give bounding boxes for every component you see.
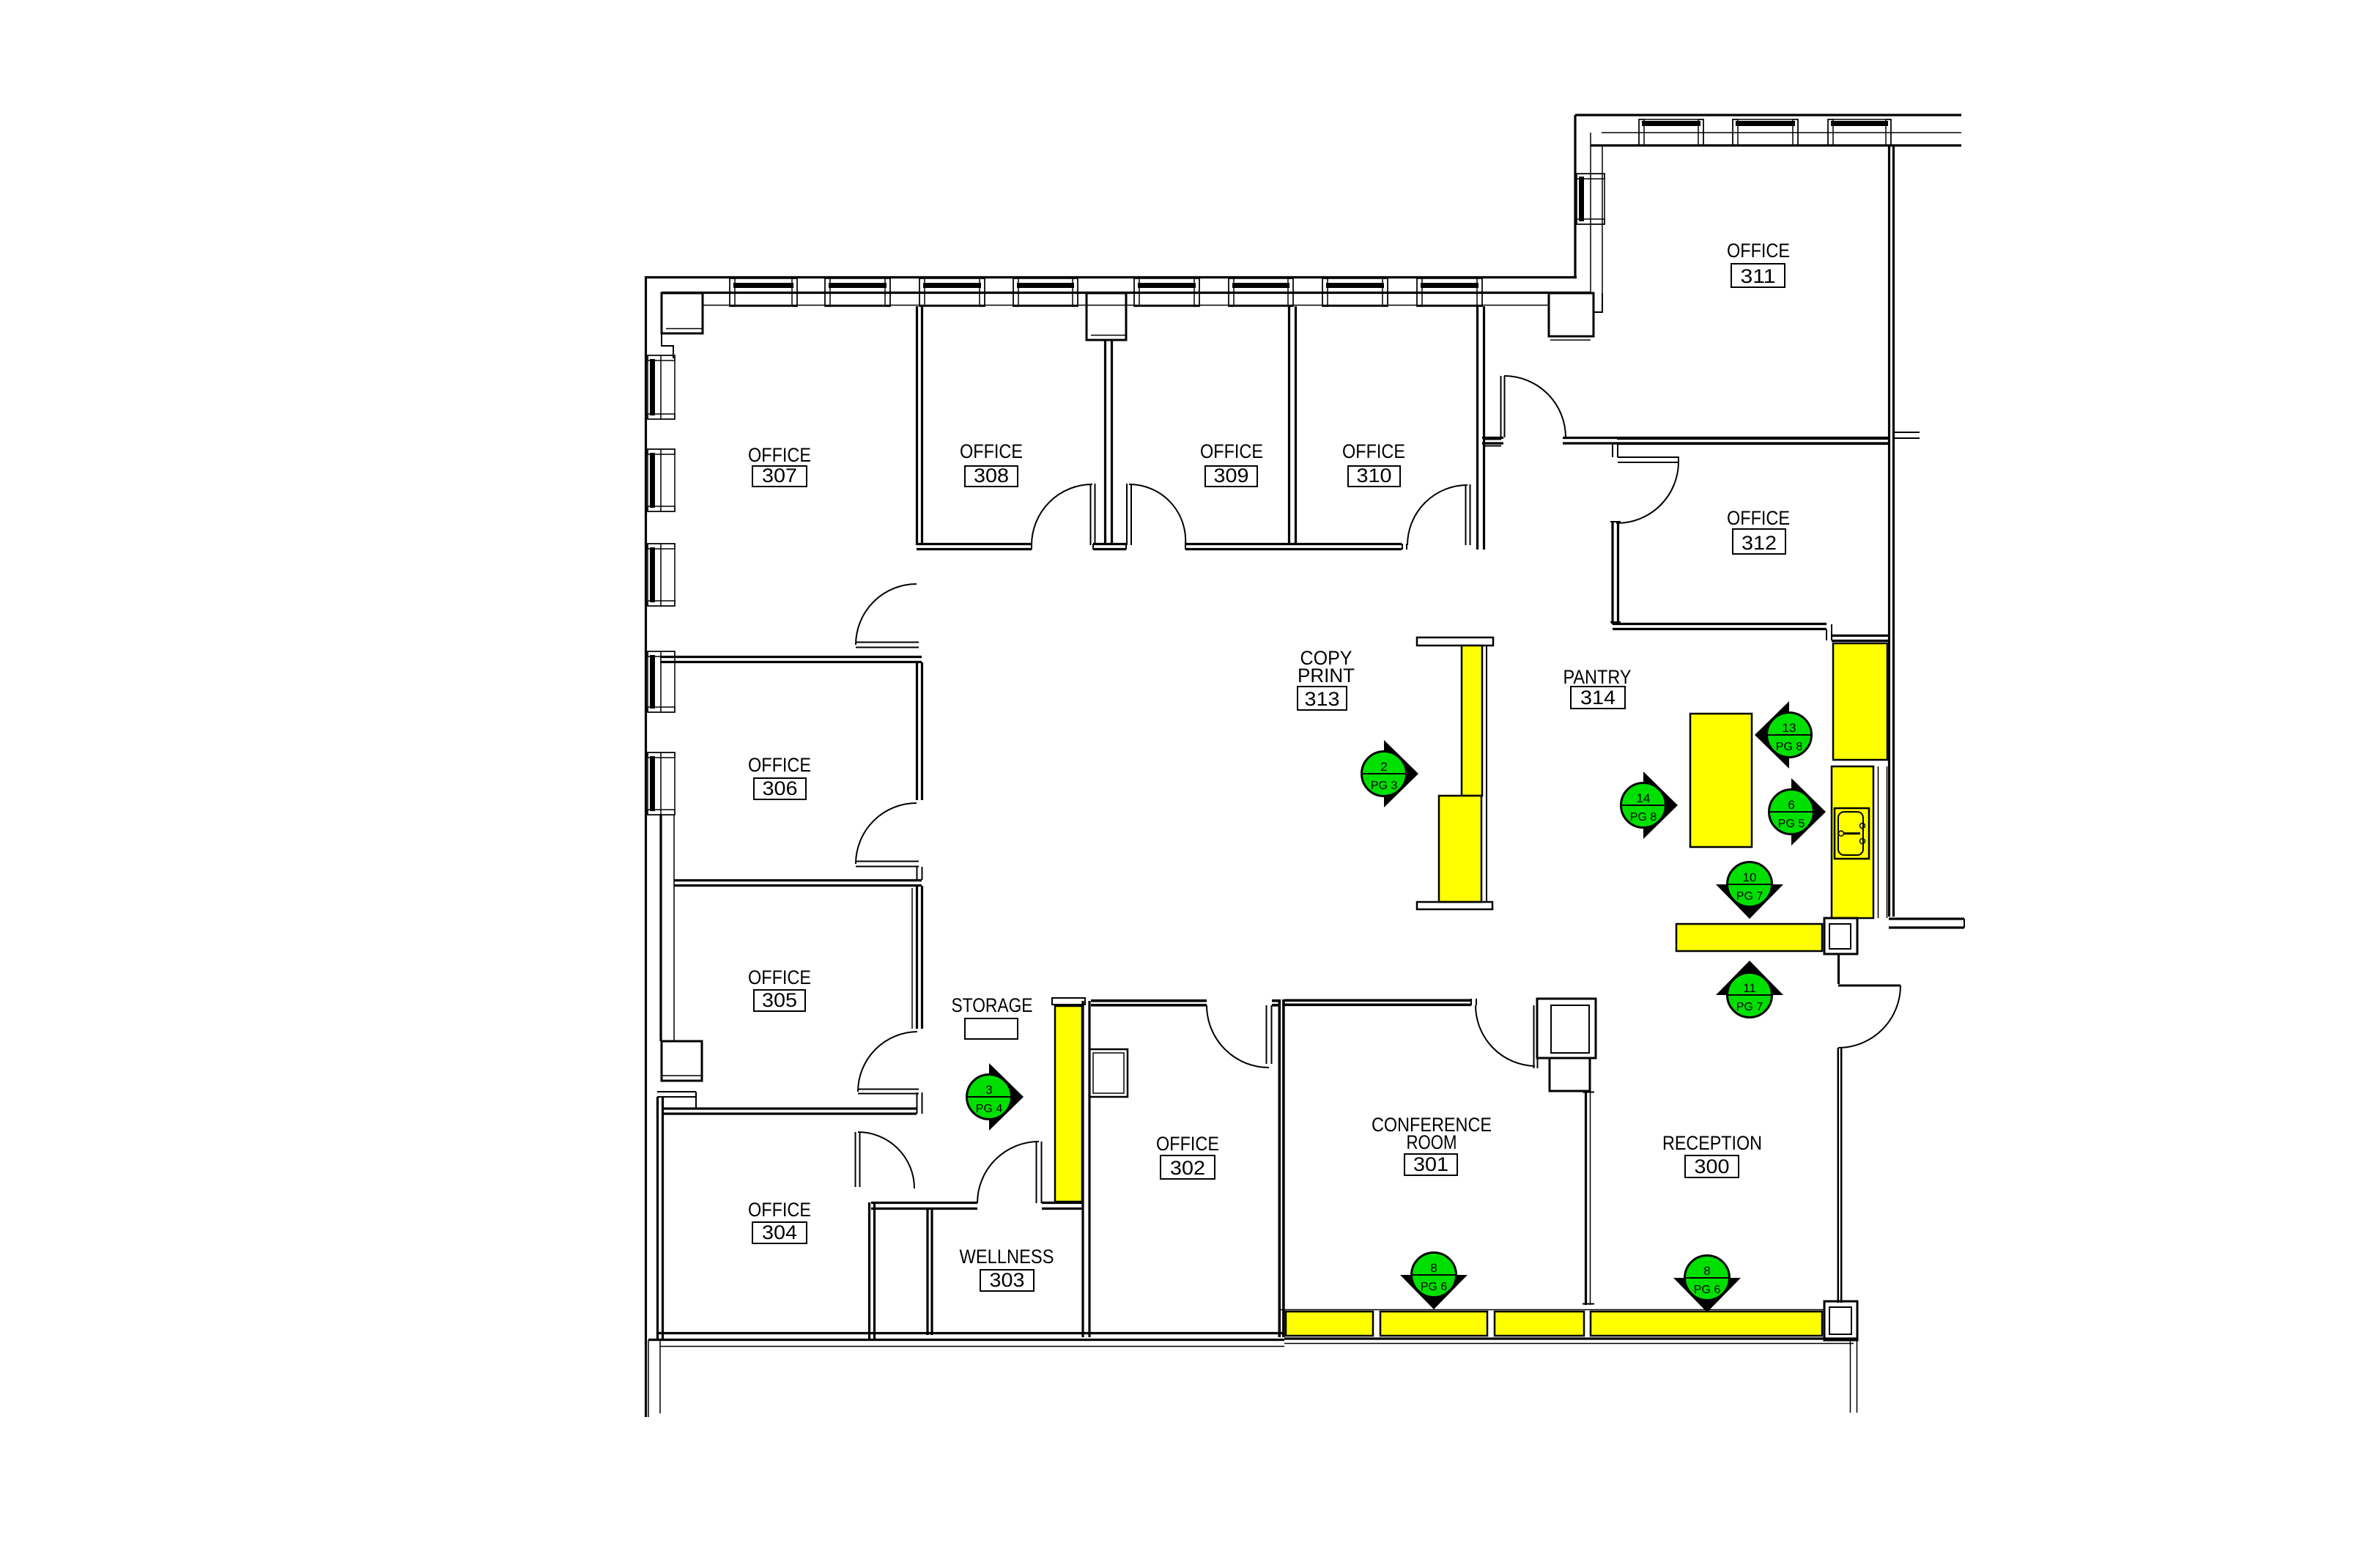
svg-text:302: 302	[1170, 1157, 1205, 1179]
svg-text:300: 300	[1695, 1155, 1730, 1177]
svg-text:301: 301	[1413, 1153, 1448, 1175]
svg-text:304: 304	[762, 1221, 797, 1243]
svg-text:STORAGE: STORAGE	[952, 994, 1033, 1016]
svg-text:8: 8	[1703, 1264, 1710, 1278]
svg-text:314: 314	[1580, 687, 1615, 709]
svg-text:311: 311	[1741, 265, 1776, 287]
svg-text:PG 6: PG 6	[1694, 1284, 1721, 1296]
svg-text:310: 310	[1357, 465, 1392, 487]
svg-text:PG 8: PG 8	[1776, 741, 1803, 753]
svg-text:14: 14	[1637, 791, 1651, 805]
svg-text:10: 10	[1743, 870, 1757, 884]
svg-text:307: 307	[762, 465, 797, 487]
svg-text:13: 13	[1783, 721, 1796, 735]
svg-text:PANTRY: PANTRY	[1563, 666, 1632, 688]
svg-text:6: 6	[1788, 798, 1794, 812]
svg-text:2: 2	[1380, 760, 1387, 774]
svg-text:PG 7: PG 7	[1736, 1001, 1763, 1013]
svg-text:OFFICE: OFFICE	[1342, 440, 1405, 462]
svg-text:PG 7: PG 7	[1736, 890, 1763, 903]
svg-text:OFFICE: OFFICE	[1200, 440, 1263, 462]
svg-text:OFFICE: OFFICE	[748, 444, 811, 466]
svg-text:306: 306	[763, 777, 798, 799]
svg-text:ROOM: ROOM	[1407, 1131, 1457, 1153]
svg-text:PG 5: PG 5	[1778, 818, 1805, 830]
svg-text:PG 3: PG 3	[1371, 780, 1398, 792]
svg-text:RECEPTION: RECEPTION	[1662, 1132, 1762, 1154]
svg-text:PG 4: PG 4	[976, 1103, 1003, 1115]
svg-text:OFFICE: OFFICE	[748, 966, 811, 988]
svg-text:309: 309	[1214, 465, 1249, 487]
svg-text:WELLNESS: WELLNESS	[960, 1246, 1054, 1268]
svg-text:8: 8	[1430, 1261, 1437, 1275]
svg-text:OFFICE: OFFICE	[1727, 240, 1790, 262]
svg-text:308: 308	[974, 465, 1009, 487]
svg-text:OFFICE: OFFICE	[748, 754, 811, 776]
svg-text:312: 312	[1742, 532, 1777, 554]
svg-text:3: 3	[985, 1083, 992, 1097]
svg-text:OFFICE: OFFICE	[1727, 507, 1790, 529]
svg-text:PG 8: PG 8	[1630, 811, 1657, 824]
svg-text:313: 313	[1305, 688, 1340, 710]
svg-text:PG 6: PG 6	[1421, 1281, 1448, 1293]
svg-text:303: 303	[990, 1269, 1025, 1291]
svg-text:305: 305	[762, 989, 797, 1011]
svg-text:OFFICE: OFFICE	[1156, 1133, 1219, 1155]
svg-text:OFFICE: OFFICE	[748, 1199, 811, 1221]
svg-text:PRINT: PRINT	[1298, 665, 1355, 687]
svg-text:OFFICE: OFFICE	[960, 440, 1023, 462]
svg-text:11: 11	[1743, 981, 1756, 995]
